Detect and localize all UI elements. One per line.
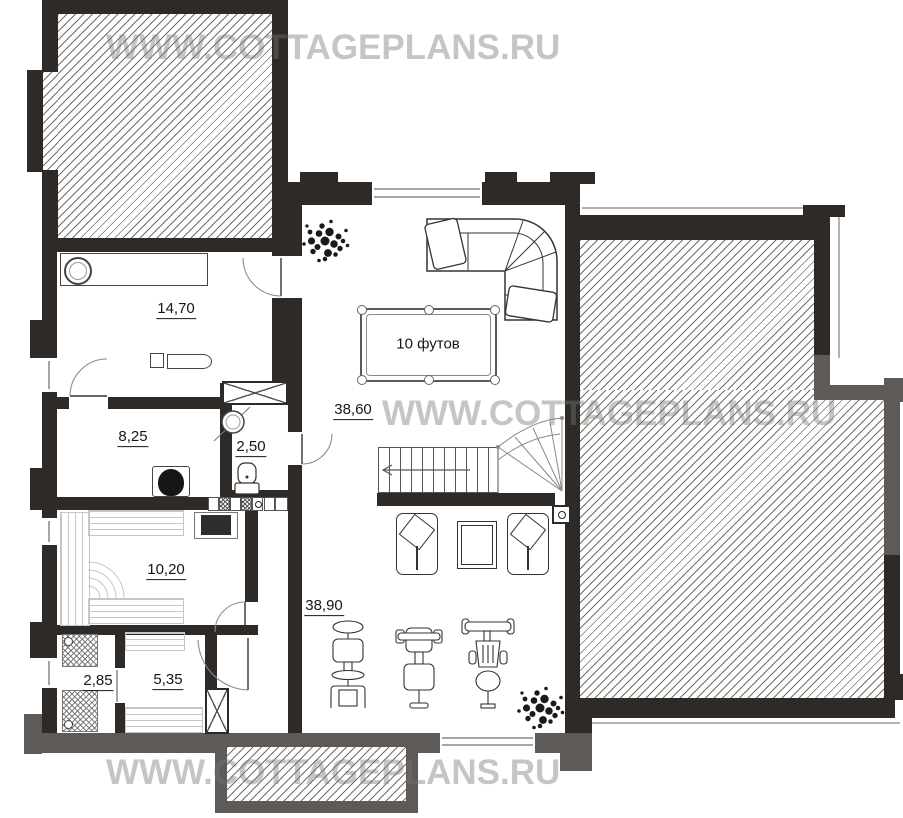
plant bbox=[517, 687, 564, 730]
stair-direction-arrow bbox=[383, 465, 470, 475]
watermark: WWW.COTTAGEPLANS.RU bbox=[106, 28, 560, 68]
door-swing bbox=[70, 258, 302, 690]
corner-sofa bbox=[424, 218, 557, 323]
watermark: WWW.COTTAGEPLANS.RU bbox=[382, 394, 836, 434]
floor-plan: 14,70 8,25 2,50 10,20 2,85 5,35 38,60 38… bbox=[0, 0, 903, 818]
watermark: WWW.COTTAGEPLANS.RU bbox=[106, 753, 560, 793]
gym-machine bbox=[462, 619, 514, 708]
plant bbox=[302, 220, 349, 263]
door-arc bbox=[70, 258, 332, 690]
weight-bench bbox=[396, 628, 442, 708]
toilet bbox=[235, 463, 259, 494]
wc-sink bbox=[214, 407, 250, 441]
exercise-bike bbox=[331, 621, 365, 708]
sauna-corner-bench bbox=[88, 562, 124, 598]
